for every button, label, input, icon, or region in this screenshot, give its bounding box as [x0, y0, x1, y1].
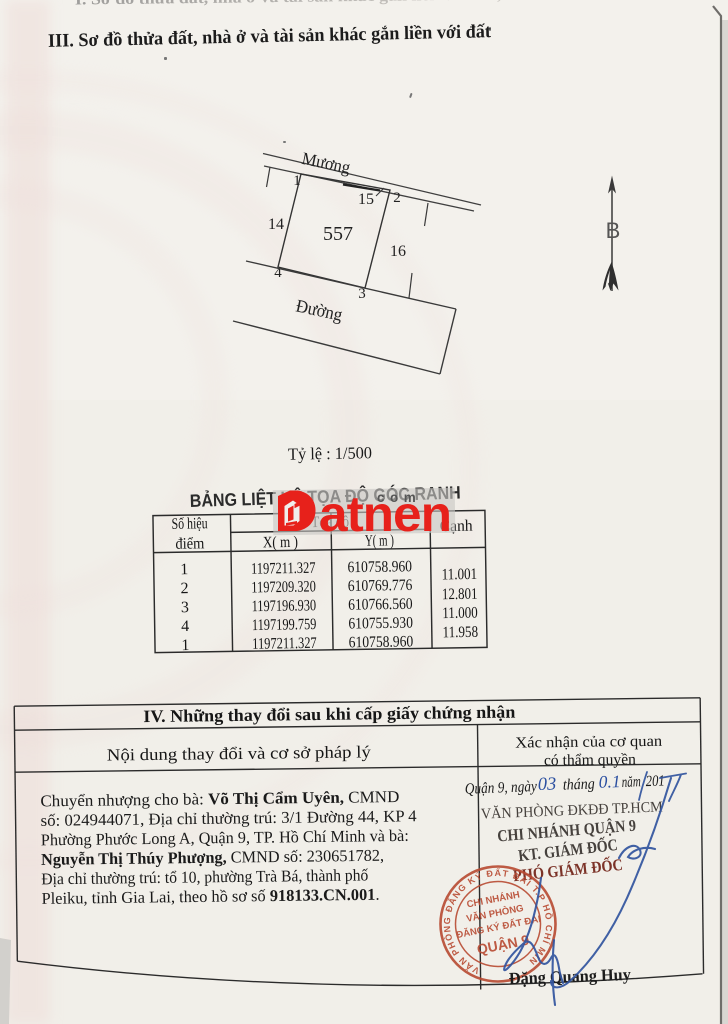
svg-text:1197211.327: 1197211.327 — [251, 560, 316, 578]
svg-text:Xác nhận của cơ quan: Xác nhận của cơ quan — [515, 733, 662, 752]
svg-text:3: 3 — [181, 599, 189, 616]
svg-text:1197196.930: 1197196.930 — [252, 597, 317, 615]
svg-text:4: 4 — [181, 618, 189, 635]
svg-text:0.1: 0.1 — [598, 771, 621, 792]
svg-text:Tỷ lệ : 1/500: Tỷ lệ : 1/500 — [288, 443, 372, 463]
svg-text:1197199.759: 1197199.759 — [252, 616, 317, 634]
svg-text:1: 1 — [181, 637, 189, 654]
svg-text:2: 2 — [393, 190, 401, 206]
svg-text:năm: năm — [621, 773, 641, 791]
svg-text:03: 03 — [537, 774, 556, 795]
svg-text:atnen: atnen — [319, 486, 451, 542]
svg-text:1197211.327: 1197211.327 — [252, 635, 317, 653]
svg-text:610769.776: 610769.776 — [348, 577, 413, 595]
svg-text:điểm: điểm — [175, 535, 205, 552]
svg-text:201: 201 — [645, 772, 665, 790]
svg-text:1: 1 — [180, 561, 188, 578]
svg-text:tháng: tháng — [562, 775, 595, 793]
svg-text:1197209.320: 1197209.320 — [251, 578, 316, 596]
svg-text:1: 1 — [293, 173, 301, 189]
svg-text:B: B — [606, 218, 621, 243]
svg-text:Số hiệu: Số hiệu — [171, 515, 207, 533]
svg-text:2: 2 — [180, 580, 188, 597]
svg-text:610766.560: 610766.560 — [348, 596, 413, 614]
svg-text:14: 14 — [268, 216, 284, 233]
svg-text:11.000: 11.000 — [442, 605, 478, 623]
svg-text:có thẩm quyền: có thẩm quyền — [544, 751, 636, 769]
svg-text:610758.960: 610758.960 — [347, 558, 412, 576]
svg-text:Quận 9, ngày: Quận 9, ngày — [465, 778, 538, 798]
svg-text:Nội dung thay đổi và cơ sở phá: Nội dung thay đổi và cơ sở pháp lý — [107, 742, 372, 764]
svg-text:11.958: 11.958 — [442, 624, 478, 642]
svg-text:610758.960: 610758.960 — [349, 633, 414, 651]
svg-text:16: 16 — [390, 243, 406, 260]
svg-text:15: 15 — [358, 191, 374, 208]
svg-text:X( m ): X( m ) — [263, 534, 298, 552]
svg-text:11.001: 11.001 — [442, 566, 478, 584]
svg-text:557: 557 — [323, 223, 353, 245]
svg-text:12.801: 12.801 — [442, 586, 478, 604]
svg-text:610755.930: 610755.930 — [348, 615, 413, 633]
